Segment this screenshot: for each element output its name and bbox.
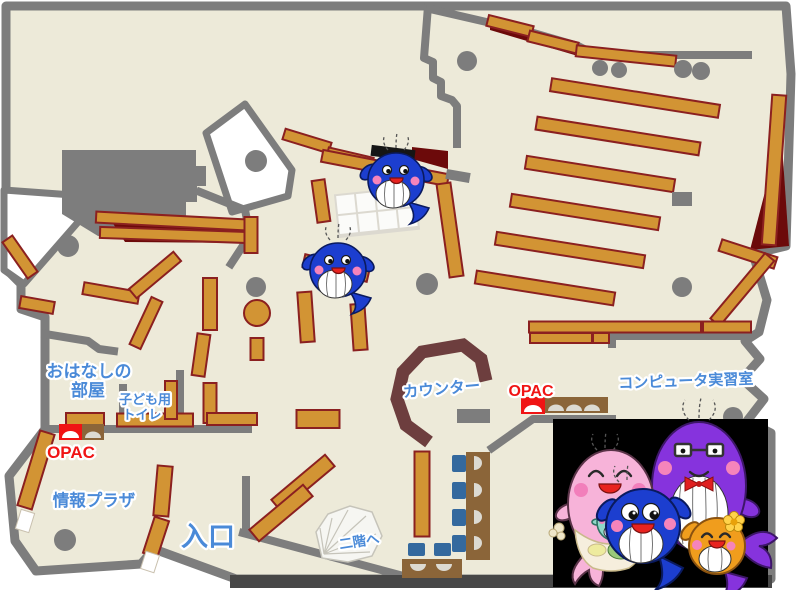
kids-toilet-label-line1: 子ども用 [119,392,171,407]
opac-terminal-left [59,424,104,440]
opac-right-label: OPAC [508,383,553,400]
round-table [244,300,270,326]
book-return-box [457,409,490,423]
library-floor-map-page: おはなしの 部屋 子ども用 トイレ OPAC OPAC 情報プラザ 入口 カウン… [0,0,800,590]
info-plaza-label: 情報プラザ [53,490,136,510]
story-room-label-line2: 部屋 [71,380,105,400]
library-floor-map: おはなしの 部屋 子ども用 トイレ OPAC OPAC 情報プラザ 入口 カウン… [0,0,800,590]
story-room-label-line1: おはなしの [47,362,132,381]
opac-left-label: OPAC [47,443,95,462]
entrance-label: 入口 [181,522,235,552]
kids-toilet-label-line2: トイレ [122,407,161,422]
